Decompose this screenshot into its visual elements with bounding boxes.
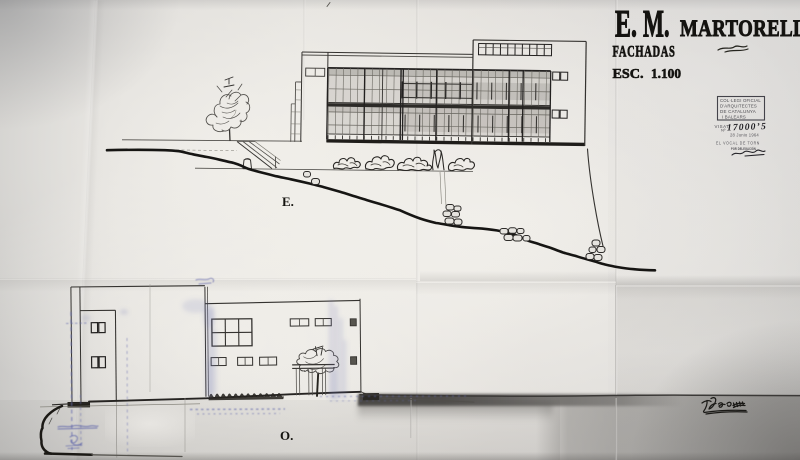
svg-text:28 Junio 1964: 28 Junio 1964 xyxy=(730,133,759,138)
svg-text:O.: O. xyxy=(280,428,293,443)
svg-text:M.: M. xyxy=(643,2,670,46)
svg-text:COL·LEGI OFICIAL: COL·LEGI OFICIAL xyxy=(720,98,761,103)
svg-text:1.100: 1.100 xyxy=(651,67,681,82)
svg-text:EL VOCAL DE TORN: EL VOCAL DE TORN xyxy=(716,141,760,146)
svg-text:ESC.: ESC. xyxy=(613,67,644,82)
svg-text:I BALEARS: I BALEARS xyxy=(722,114,746,119)
svg-text:D'ARQUITECTES: D'ARQUITECTES xyxy=(720,104,757,109)
svg-text:DE CATALUNYA: DE CATALUNYA xyxy=(720,109,757,114)
svg-text:E.: E. xyxy=(282,194,294,209)
svg-text:Nº: Nº xyxy=(721,128,726,133)
svg-text:FACHADAS: FACHADAS xyxy=(613,44,676,61)
svg-text:MARTORELL: MARTORELL xyxy=(680,16,800,42)
svg-text:POR DELEGACIÓN: POR DELEGACIÓN xyxy=(731,146,756,151)
svg-text:E.: E. xyxy=(615,2,637,46)
